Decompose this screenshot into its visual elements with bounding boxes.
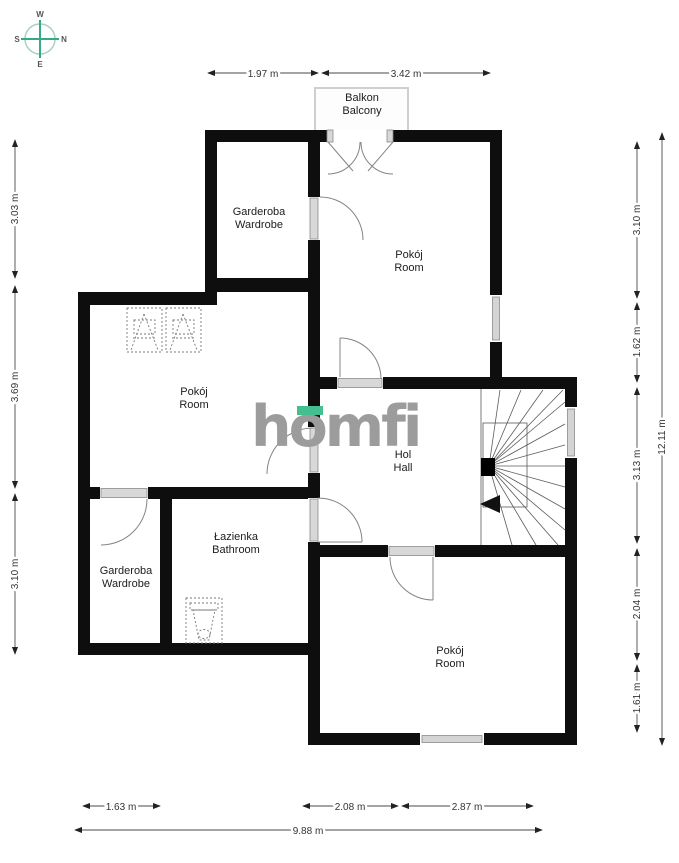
label-room-bottom-pl: Pokój	[435, 645, 464, 658]
furniture-layer	[127, 308, 222, 643]
door-wardrobe-top	[308, 197, 363, 240]
window-room-top-east	[490, 295, 502, 342]
dim-bottom-3: 2.87 m	[452, 802, 483, 813]
chair-symbol-2	[166, 308, 201, 352]
label-balcony-en: Balcony	[342, 105, 381, 118]
doors-layer	[100, 130, 435, 600]
compass-rose-icon: W N S E	[14, 10, 67, 69]
label-wardrobe-top: Garderoba Wardrobe	[233, 206, 286, 232]
window-hall-east	[565, 407, 577, 458]
dim-left-3: 3.10 m	[10, 559, 21, 590]
label-room-left-en: Room	[179, 399, 208, 412]
dim-bottom-1: 1.63 m	[106, 802, 137, 813]
label-wardrobe-bottom: Garderoba Wardrobe	[100, 565, 153, 591]
label-hall-en: Hall	[394, 462, 413, 475]
compass-north-label: N	[61, 35, 67, 44]
door-balcony-double	[327, 130, 393, 174]
dim-right-3: 3.13 m	[632, 450, 643, 481]
homfi-logo-accent-bar	[297, 406, 323, 415]
dim-left-2: 3.69 m	[10, 372, 21, 403]
label-room-top: Pokój Room	[394, 249, 423, 275]
door-hall-room-top	[337, 338, 383, 389]
dim-bottom-2: 2.08 m	[335, 802, 366, 813]
label-balcony-pl: Balkon	[342, 92, 381, 105]
door-wardrobe-bottom	[100, 487, 148, 545]
compass-east-label: E	[37, 60, 43, 69]
dim-top-1: 1.97 m	[248, 69, 279, 80]
label-room-bottom: Pokój Room	[435, 645, 464, 671]
door-hall-bathroom	[308, 498, 362, 542]
door-hall-room-bottom	[388, 545, 435, 600]
label-room-bottom-en: Room	[435, 658, 464, 671]
label-room-top-en: Room	[394, 262, 423, 275]
label-room-left-pl: Pokój	[179, 386, 208, 399]
dim-right-2: 1.62 m	[632, 327, 643, 358]
compass-west-label: W	[36, 10, 44, 19]
label-hall: Hol Hall	[394, 449, 413, 475]
dim-bottom-total: 9.88 m	[293, 826, 324, 837]
staircase	[480, 389, 565, 545]
label-room-left: Pokój Room	[179, 386, 208, 412]
dim-right-1: 3.10 m	[632, 205, 643, 236]
window-room-bottom-south	[420, 733, 484, 745]
compass-south-label: S	[14, 35, 20, 44]
dim-left-1: 3.03 m	[10, 194, 21, 225]
label-wardrobe-top-en: Wardrobe	[233, 219, 286, 232]
homfi-logo: homfi	[251, 399, 419, 456]
dim-right-4: 2.04 m	[632, 589, 643, 620]
floorplan-page: W N S E	[0, 0, 679, 863]
chair-symbol-1	[127, 308, 162, 352]
label-bathroom-pl: Łazienka	[212, 531, 260, 544]
dim-right-total: 12.11 m	[657, 419, 668, 454]
label-wardrobe-top-pl: Garderoba	[233, 206, 286, 219]
label-bathroom-en: Bathroom	[212, 544, 260, 557]
dim-top-2: 3.42 m	[391, 69, 422, 80]
stair-newel-post	[481, 458, 495, 476]
label-wardrobe-bottom-pl: Garderoba	[100, 565, 153, 578]
label-wardrobe-bottom-en: Wardrobe	[100, 578, 153, 591]
label-bathroom: Łazienka Bathroom	[212, 531, 260, 557]
label-balcony: Balkon Balcony	[342, 92, 381, 118]
label-hall-pl: Hol	[394, 449, 413, 462]
dim-right-5: 1.61 m	[632, 683, 643, 714]
label-room-top-pl: Pokój	[394, 249, 423, 262]
toilet-symbol	[186, 598, 222, 643]
